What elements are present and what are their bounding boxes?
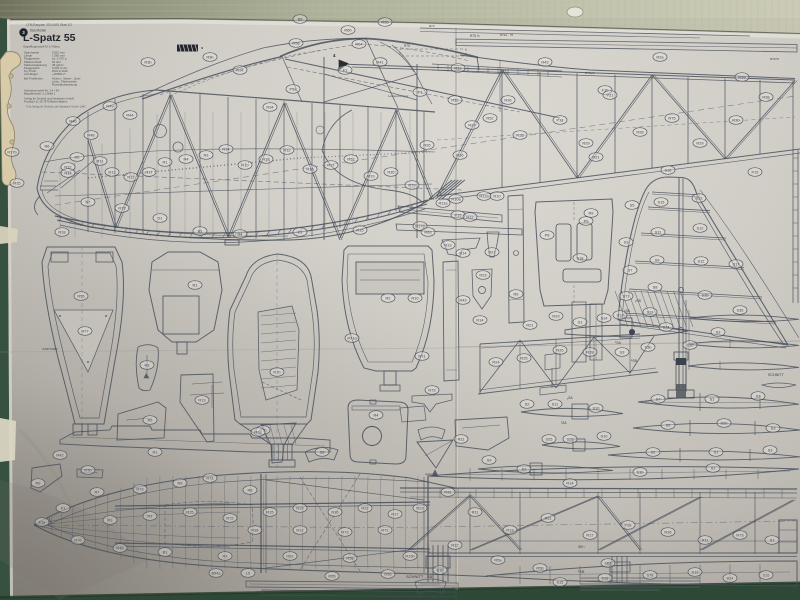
svg-text:S5: S5 <box>630 203 635 208</box>
svg-text:R4: R4 <box>184 157 190 162</box>
svg-text:S15: S15 <box>557 580 564 585</box>
svg-text:R75: R75 <box>116 546 123 551</box>
svg-text:R36: R36 <box>456 153 463 158</box>
svg-text:R6: R6 <box>45 144 50 149</box>
svg-text:R12: R12 <box>454 66 461 71</box>
svg-text:S8: S8 <box>653 285 658 290</box>
svg-text:R43: R43 <box>541 60 548 65</box>
svg-text:R19: R19 <box>296 506 303 511</box>
svg-text:S13: S13 <box>617 313 624 318</box>
svg-text:S17: S17 <box>733 262 740 267</box>
svg-text:R9: R9 <box>514 292 519 297</box>
svg-text:S2: S2 <box>651 450 656 455</box>
svg-text:S3: S3 <box>716 330 721 335</box>
svg-text:R73: R73 <box>429 24 435 28</box>
svg-text:R75: R75 <box>186 510 193 515</box>
svg-text:R21: R21 <box>592 155 599 160</box>
svg-text:R9: R9 <box>36 481 41 486</box>
svg-text:R26: R26 <box>664 530 671 535</box>
svg-text:R17: R17 <box>327 163 334 168</box>
svg-text:P18: P18 <box>557 118 564 123</box>
svg-text:S14: S14 <box>601 316 609 321</box>
svg-text:R56: R56 <box>384 572 391 577</box>
svg-text:R12: R12 <box>451 543 458 548</box>
svg-text:S35: S35 <box>702 293 709 298</box>
svg-text:R28: R28 <box>516 133 523 138</box>
svg-text:S1b: S1b <box>637 470 644 475</box>
svg-text:F1a: F1a <box>39 520 47 525</box>
svg-text:R7b: R7b <box>273 370 280 375</box>
svg-text:R38: R38 <box>762 95 769 100</box>
svg-text:R52: R52 <box>486 116 493 121</box>
svg-text:S1: S1 <box>710 397 715 402</box>
svg-text:B1: B1 <box>198 229 203 234</box>
svg-text:R56: R56 <box>536 566 543 571</box>
svg-text:R23: R23 <box>416 506 423 511</box>
svg-text:SB¬: SB¬ <box>578 545 585 549</box>
svg-text:R77: R77 <box>81 329 88 334</box>
svg-text:R39: R39 <box>738 75 745 80</box>
svg-text:Bauplänesatz 1:1 Blatt 1: Bauplänesatz 1:1 Blatt 1 <box>24 92 56 96</box>
svg-text:S78: S78 <box>647 573 654 578</box>
svg-text:R5: R5 <box>75 155 80 160</box>
svg-text:S1b: S1b <box>687 343 694 348</box>
svg-text:R14: R14 <box>459 251 467 256</box>
svg-text:R55: R55 <box>381 20 388 25</box>
svg-text:R10: R10 <box>411 296 419 301</box>
svg-text:SCHNITT - SB: SCHNITT - SB <box>406 574 432 579</box>
svg-text:R11: R11 <box>97 159 104 164</box>
svg-text:S14: S14 <box>663 325 671 330</box>
svg-text:R11: R11 <box>458 437 465 442</box>
svg-text:D1: D1 <box>158 216 163 221</box>
svg-text:R44: R44 <box>126 113 134 118</box>
svg-text:R79: R79 <box>408 183 415 188</box>
svg-text:S71: S71 <box>623 294 630 299</box>
svg-text:R2: R2 <box>386 296 391 301</box>
svg-text:R12: R12 <box>466 215 473 220</box>
svg-text:R7a: R7a <box>254 430 262 435</box>
svg-text:R18: R18 <box>262 157 269 162</box>
svg-text:P15: P15 <box>455 213 462 218</box>
svg-text:S10: S10 <box>601 434 609 439</box>
svg-text:S3: S3 <box>768 448 773 453</box>
svg-text:R17: R17 <box>586 533 593 538</box>
svg-text:R15: R15 <box>13 181 20 186</box>
svg-text:B14: B14 <box>727 576 735 581</box>
svg-text:R42: R42 <box>56 453 63 458</box>
svg-text:R46: R46 <box>69 119 76 124</box>
svg-text:S15: S15 <box>763 573 770 578</box>
svg-text:R23: R23 <box>552 314 559 319</box>
svg-text:SCHNITT: SCHNITT <box>768 373 784 377</box>
svg-text:R10: R10 <box>493 194 501 199</box>
svg-text:R34: R34 <box>266 105 274 110</box>
svg-text:R1: R1 <box>193 283 198 288</box>
svg-text:┌SB: ┌SB <box>634 299 642 303</box>
svg-text:S2: S2 <box>522 467 527 472</box>
svg-text:R9: R9 <box>178 481 183 486</box>
svg-text:R71a/b: R71a/b <box>585 71 595 75</box>
svg-text:R73: R73 <box>341 530 348 535</box>
svg-text:S8: S8 <box>320 450 325 455</box>
svg-text:Halterung: Halterung <box>425 472 438 476</box>
svg-text:Leitwerksträger: Leitwerksträger <box>388 94 410 98</box>
svg-text:JUNKTURM: JUNKTURM <box>42 347 58 351</box>
svg-text:S2: S2 <box>525 402 530 407</box>
svg-text:R29: R29 <box>696 141 703 146</box>
svg-text:R77: R77 <box>118 206 125 211</box>
svg-text:R17: R17 <box>391 512 398 517</box>
svg-text:R7: R7 <box>86 200 91 205</box>
svg-text:B1: B1 <box>163 550 168 555</box>
svg-text:P21: P21 <box>607 93 614 98</box>
svg-text:R16: R16 <box>306 167 313 172</box>
svg-text:R18: R18 <box>58 230 65 235</box>
svg-text:R12: R12 <box>296 528 303 533</box>
svg-text:R26: R26 <box>504 98 511 103</box>
svg-text:S3: S3 <box>620 350 625 355</box>
svg-text:B8: B8 <box>298 17 303 22</box>
svg-text:P28: P28 <box>625 523 632 528</box>
svg-text:R75: R75 <box>668 116 675 121</box>
svg-text:R1: R1 <box>163 160 168 165</box>
svg-text:R28: R28 <box>586 350 593 355</box>
svg-text:R3: R3 <box>223 554 228 559</box>
svg-text:Segelflugmodell M 1:4 Best.: Segelflugmodell M 1:4 Best. <box>23 45 61 49</box>
svg-text:R29: R29 <box>582 141 589 146</box>
svg-text:S20: S20 <box>721 421 729 426</box>
svg-text:S19: S19 <box>647 310 654 315</box>
svg-text:R11: R11 <box>545 516 552 521</box>
svg-text:P15: P15 <box>752 170 759 175</box>
svg-text:S3: S3 <box>771 426 776 431</box>
svg-text:R10a: R10a <box>451 197 461 202</box>
svg-text:S1: S1 <box>578 320 583 325</box>
svg-text:R11: R11 <box>702 538 709 543</box>
svg-text:◄: ◄ <box>200 46 203 50</box>
svg-text:S10: S10 <box>593 406 601 411</box>
svg-text:R5a: R5a <box>494 558 502 563</box>
svg-text:R21: R21 <box>488 250 495 255</box>
svg-text:S18: S18 <box>577 256 584 261</box>
svg-text:└SB: └SB <box>630 358 638 363</box>
svg-text:R73: R73 <box>428 388 435 393</box>
svg-text:P5a: P5a <box>290 87 298 92</box>
svg-text:R13: R13 <box>108 170 115 175</box>
svg-text:© by Verlag für Technik und Ha: © by Verlag für Technik und Handwerk Gmb… <box>26 105 86 109</box>
svg-text:S5: S5 <box>666 423 671 428</box>
svg-text:R43: R43 <box>459 298 466 303</box>
svg-text:SB1: SB1 <box>604 561 611 566</box>
svg-text:R75: R75 <box>404 44 410 48</box>
svg-text:R4: R4 <box>374 413 380 418</box>
svg-text:R26: R26 <box>556 348 563 353</box>
svg-text:S11: S11 <box>655 230 662 235</box>
svg-text:R15: R15 <box>266 510 273 515</box>
svg-text:R14: R14 <box>566 481 574 486</box>
svg-text:└SA: └SA <box>560 421 567 425</box>
svg-text:S26: S26 <box>567 437 574 442</box>
svg-text:R64: R64 <box>355 42 363 47</box>
svg-text:R71a · 76: R71a · 76 <box>500 33 514 37</box>
svg-text:R19: R19 <box>367 174 374 179</box>
svg-text:R48: R48 <box>87 133 94 138</box>
svg-text:R14: R14 <box>222 147 230 152</box>
svg-text:P9: P9 <box>584 219 589 224</box>
svg-text:P8: P8 <box>545 233 550 238</box>
svg-text:S7: S7 <box>628 268 633 273</box>
svg-text:R17a: R17a <box>415 224 425 229</box>
svg-text:R73: R73 <box>736 533 743 538</box>
svg-text:R13: R13 <box>444 243 451 248</box>
svg-text:R14: R14 <box>476 318 484 323</box>
svg-text:R33: R33 <box>451 98 458 103</box>
svg-text:D52: D52 <box>286 554 293 559</box>
svg-text:LFM-Bauplan 330-0691 Blatt 1: LFM-Bauplan 330-0691 Blatt 1/2 <box>26 23 72 27</box>
svg-text:F1: F1 <box>61 506 66 511</box>
svg-text:S3b: S3b <box>645 345 652 350</box>
svg-text:R58: R58 <box>292 41 299 46</box>
svg-text:K1: K1 <box>298 230 303 235</box>
svg-text:R26: R26 <box>423 143 430 148</box>
svg-text:R3: R3 <box>145 363 150 368</box>
svg-text:S9: S9 <box>487 458 492 463</box>
svg-text:R27: R27 <box>468 123 475 128</box>
svg-text:S12: S12 <box>698 259 705 264</box>
svg-text:R3: R3 <box>204 153 209 158</box>
svg-text:R52: R52 <box>347 157 354 162</box>
svg-text:R12: R12 <box>127 175 134 180</box>
svg-text:R75 ¾: R75 ¾ <box>470 34 480 38</box>
svg-text:R55: R55 <box>77 294 84 299</box>
svg-text:Postfach 11 28 7570 Baden-Ba: Postfach 11 28 7570 Baden-Baden <box>24 100 68 104</box>
svg-text:F1: F1 <box>343 68 348 73</box>
svg-text:R11: R11 <box>472 510 479 515</box>
svg-text:└SB: └SB <box>577 569 585 574</box>
svg-text:B54a: B54a <box>211 571 221 576</box>
svg-text:S1: S1 <box>711 466 716 471</box>
svg-text:R4: R4 <box>238 232 244 237</box>
svg-text:R28: R28 <box>636 130 643 135</box>
svg-text:R11a: R11a <box>438 201 448 206</box>
svg-text:S35: S35 <box>737 308 744 313</box>
svg-text:R72: R72 <box>226 516 233 521</box>
svg-text:S13: S13 <box>696 196 703 201</box>
svg-text:S7: S7 <box>656 397 661 402</box>
svg-text:S9: S9 <box>655 258 660 263</box>
svg-text:R23: R23 <box>479 273 486 278</box>
svg-text:R13: R13 <box>506 528 513 533</box>
svg-text:S3: S3 <box>624 240 629 245</box>
svg-text:R1: R1 <box>148 514 153 519</box>
svg-text:S11: S11 <box>552 402 559 407</box>
svg-text:Bei Profilierten: Bei Profilierten <box>24 76 43 80</box>
svg-text:R5: R5 <box>148 418 153 423</box>
svg-text:R16: R16 <box>331 510 338 515</box>
svg-text:R12: R12 <box>283 148 290 153</box>
svg-text:S3: S3 <box>756 394 761 399</box>
svg-text:R15b: R15b <box>405 554 414 559</box>
svg-text:S18: S18 <box>602 576 609 581</box>
svg-text:R58: R58 <box>346 556 353 561</box>
svg-text:R72: R72 <box>381 528 388 533</box>
svg-text:R8: R8 <box>248 488 253 493</box>
svg-text:R3: R3 <box>108 518 113 523</box>
svg-text:S25: S25 <box>546 437 553 442</box>
svg-text:R49: R49 <box>106 104 113 109</box>
svg-text:S15: S15 <box>658 200 665 205</box>
svg-text:S12: S12 <box>697 226 704 231</box>
svg-text:L-Spatz 55: L-Spatz 55 <box>23 32 76 44</box>
svg-text:└SA: └SA <box>614 340 622 345</box>
svg-text:R10: R10 <box>241 163 249 168</box>
svg-text:R24: R24 <box>492 360 500 365</box>
svg-text:R17: R17 <box>145 170 152 175</box>
svg-text:R76: R76 <box>74 538 81 543</box>
svg-text:R2a: R2a <box>656 55 664 60</box>
svg-text:R71: R71 <box>206 476 213 481</box>
svg-text:R30: R30 <box>732 118 740 123</box>
svg-text:R3b: R3b <box>144 60 151 65</box>
svg-text:R31: R31 <box>444 490 451 495</box>
svg-text:R55: R55 <box>328 574 335 579</box>
svg-text:R35: R35 <box>387 170 394 175</box>
svg-text:Rumpfausspantung: Rumpfausspantung <box>52 83 77 87</box>
svg-text:R15: R15 <box>356 228 363 233</box>
svg-text:R75/76: R75/76 <box>770 57 779 61</box>
svg-text:R41: R41 <box>376 60 383 65</box>
svg-text:R25: R25 <box>520 356 527 361</box>
svg-text:R63: R63 <box>424 230 431 235</box>
svg-text:B1b: B1b <box>437 568 444 573</box>
svg-text:R71: R71 <box>418 354 425 359</box>
svg-text:S13: S13 <box>692 570 699 575</box>
svg-text:S16: S16 <box>665 168 672 173</box>
svg-text:R9b: R9b <box>206 55 213 60</box>
svg-text:R60: R60 <box>344 28 352 33</box>
svg-text:R21: R21 <box>526 323 533 328</box>
svg-text:R9: R9 <box>589 211 594 216</box>
svg-text:R12a: R12a <box>479 194 489 199</box>
svg-text:L5: L5 <box>246 571 250 576</box>
svg-text:R71a: R71a <box>347 336 357 341</box>
svg-text:R22: R22 <box>361 506 368 511</box>
svg-text:R14: R14 <box>64 171 72 176</box>
svg-text:S1: S1 <box>770 538 775 543</box>
svg-text:R13: R13 <box>198 398 205 403</box>
svg-text:R1: R1 <box>153 450 158 455</box>
svg-text:S1: S1 <box>714 450 719 455</box>
svg-text:R73: R73 <box>136 487 143 492</box>
svg-text:R36: R36 <box>251 528 258 533</box>
svg-text:R94: R94 <box>236 68 244 73</box>
svg-text:R7b: R7b <box>84 468 91 473</box>
svg-text:P3: P3 <box>418 90 423 95</box>
svg-text:R17b: R17b <box>7 150 16 155</box>
svg-text:R7: R7 <box>95 490 100 495</box>
